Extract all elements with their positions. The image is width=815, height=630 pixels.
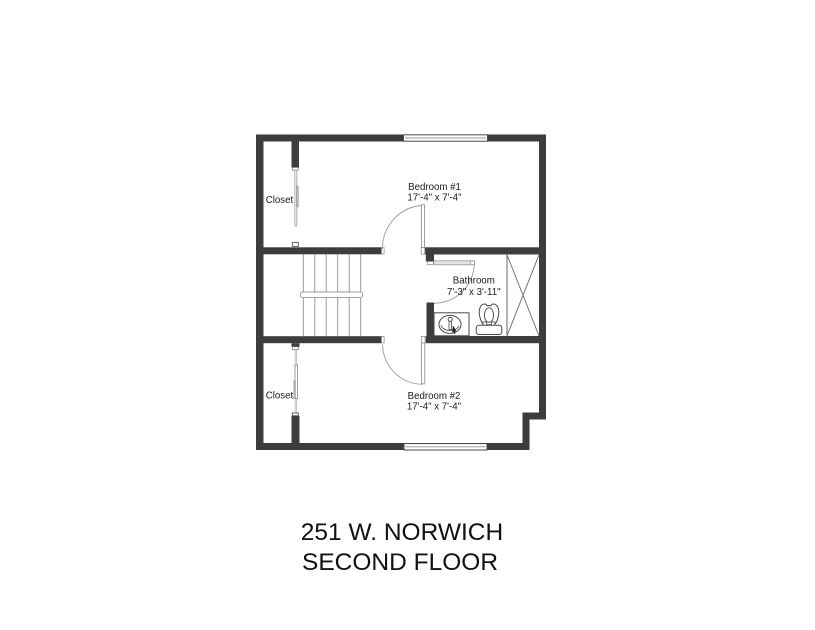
svg-text:17'-4" x 7'-4": 17'-4" x 7'-4" (407, 192, 462, 203)
svg-text:Closet: Closet (266, 390, 294, 401)
svg-text:SECOND FLOOR: SECOND FLOOR (302, 549, 498, 576)
svg-text:Bathroom: Bathroom (453, 276, 495, 287)
svg-text:251 W. NORWICH: 251 W. NORWICH (301, 519, 503, 546)
svg-text:17'-4" x 7'-4": 17'-4" x 7'-4" (407, 401, 462, 412)
svg-text:7'-3" x 3'-11": 7'-3" x 3'-11" (447, 287, 501, 298)
svg-text:Closet: Closet (266, 195, 294, 206)
